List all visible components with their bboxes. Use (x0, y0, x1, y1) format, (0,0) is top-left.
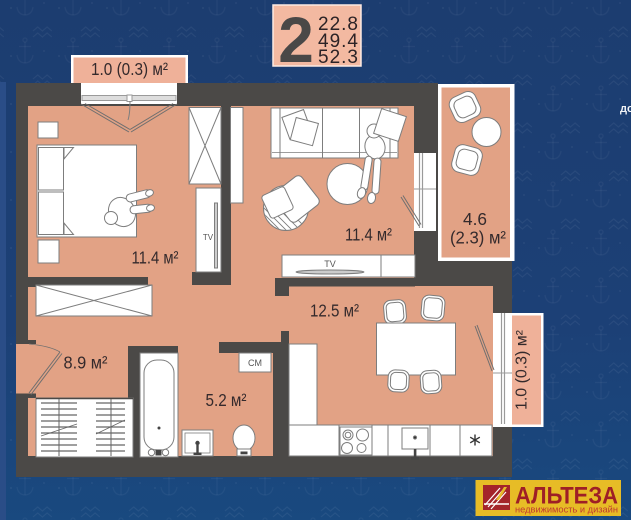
svg-text:11.4 м²: 11.4 м² (345, 225, 392, 245)
svg-text:(2.3) м²: (2.3) м² (450, 228, 506, 248)
svg-text:СМ: СМ (248, 358, 262, 368)
svg-text:4.6: 4.6 (463, 209, 487, 229)
svg-text:до: до (620, 103, 631, 115)
svg-text:2: 2 (278, 4, 314, 76)
svg-text:8.9 м²: 8.9 м² (64, 353, 108, 373)
svg-text:недвижимость и дизайн: недвижимость и дизайн (515, 505, 618, 516)
svg-text:TV: TV (324, 259, 336, 269)
svg-text:11.4 м²: 11.4 м² (132, 248, 179, 268)
svg-text:1.0 (0.3) м²: 1.0 (0.3) м² (91, 59, 168, 79)
svg-text:1.0 (0.3) м²: 1.0 (0.3) м² (514, 330, 531, 410)
svg-text:12.5 м²: 12.5 м² (310, 301, 359, 321)
svg-text:5.2 м²: 5.2 м² (206, 390, 247, 410)
svg-text:52.3: 52.3 (318, 47, 358, 68)
svg-text:TV: TV (203, 233, 214, 242)
